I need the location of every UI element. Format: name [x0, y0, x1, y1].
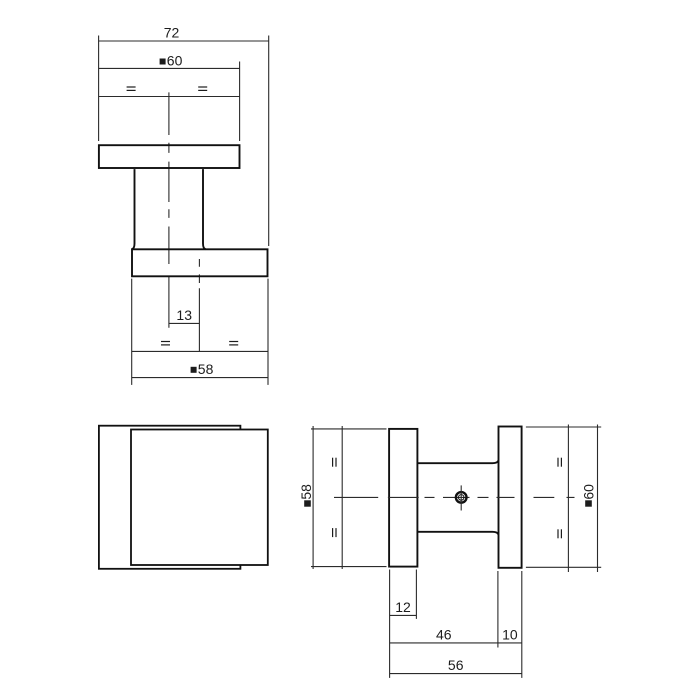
svg-text:58: 58 — [298, 484, 314, 500]
svg-text:60: 60 — [580, 484, 596, 500]
svg-text:72: 72 — [164, 25, 180, 41]
svg-text:60: 60 — [167, 53, 183, 69]
svg-text:58: 58 — [198, 361, 214, 377]
svg-text:46: 46 — [436, 626, 452, 642]
svg-text:13: 13 — [176, 307, 192, 323]
svg-text:56: 56 — [448, 657, 464, 673]
svg-text:10: 10 — [502, 626, 518, 642]
svg-text:12: 12 — [395, 599, 411, 615]
